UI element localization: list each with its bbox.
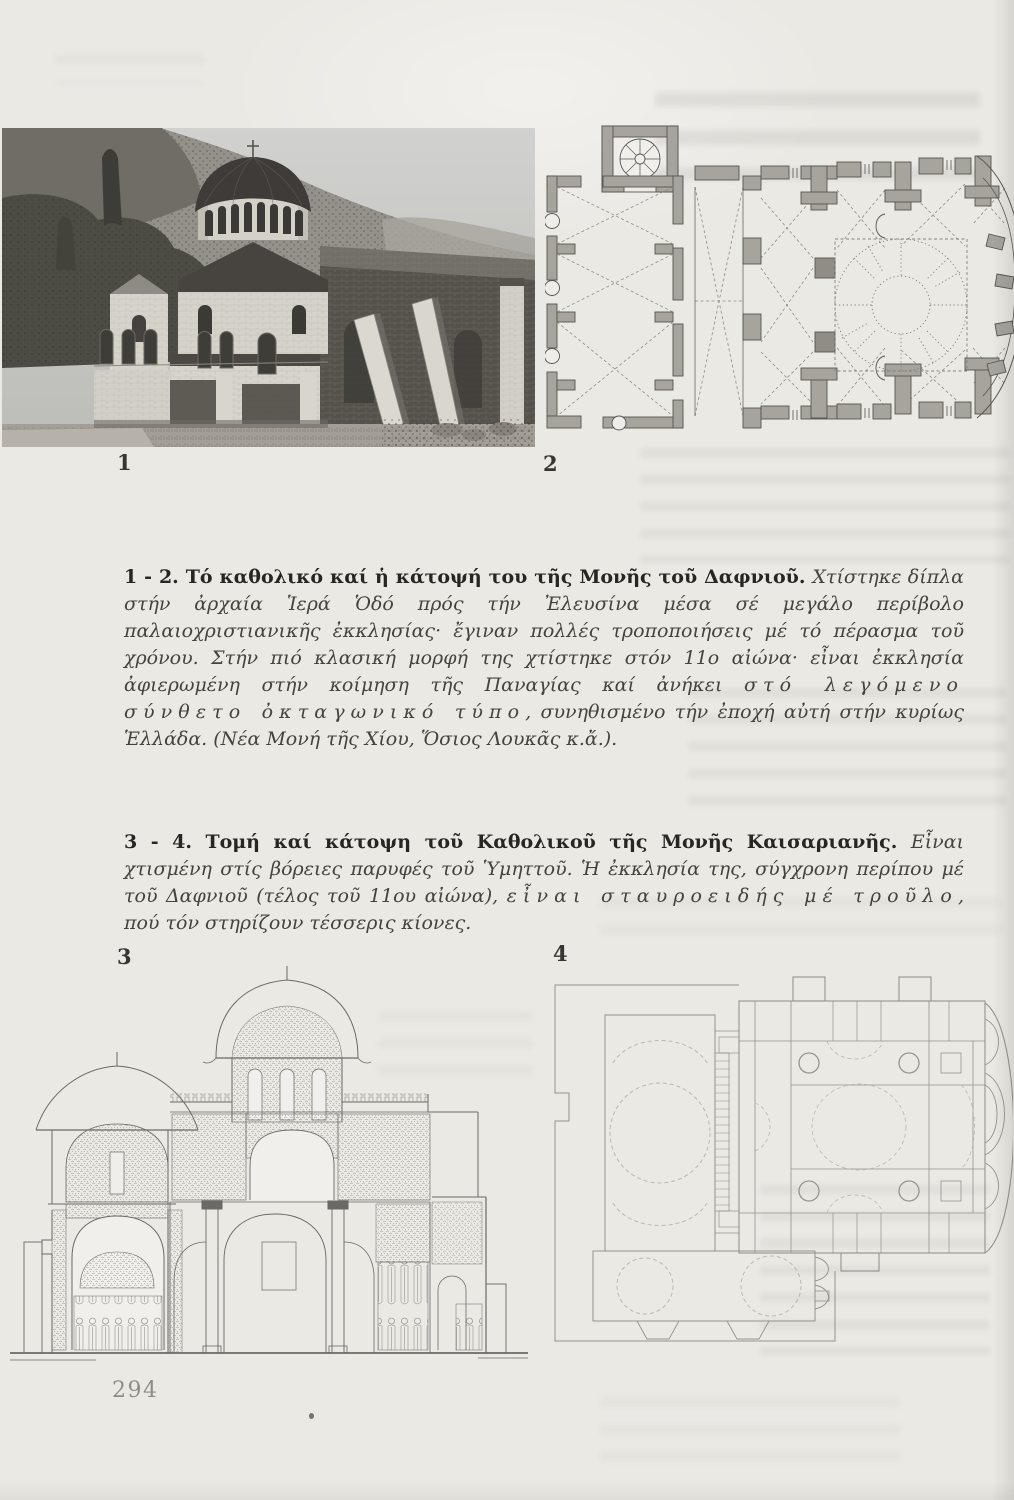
bleed-through-smudge	[640, 448, 1010, 563]
column-capital	[328, 1201, 348, 1209]
pier	[941, 1181, 961, 1201]
stair-passage	[715, 1031, 739, 1233]
figure-label-1: 1	[117, 450, 132, 475]
column-capital	[202, 1201, 222, 1209]
side-chapel-room	[593, 1251, 829, 1339]
dome-projections	[755, 1041, 975, 1213]
north-wall	[761, 156, 999, 210]
page-edge-shadow	[0, 1482, 1014, 1500]
naos-frieze	[170, 1112, 430, 1202]
pier	[941, 1053, 961, 1073]
esonarthex	[695, 166, 761, 428]
enclosure-wall	[555, 985, 835, 1341]
figure-photo-daphni	[2, 128, 535, 447]
page-number: 294	[112, 1378, 159, 1403]
vault-diagonals	[557, 184, 1005, 416]
naos-arcade	[170, 1201, 374, 1353]
figure-section-kaisariani	[8, 952, 535, 1382]
buttress-marks	[637, 1321, 769, 1339]
central-octagon	[835, 239, 967, 371]
caption-bold-lead: 3 - 4. Τομή καί κάτοψη τοῦ Καθολικοῦ τῆς…	[124, 831, 911, 853]
scan-speck	[309, 1413, 314, 1419]
column	[799, 1181, 819, 1201]
figure-plan-kaisariani	[543, 945, 1013, 1390]
bleed-through-smudge	[55, 55, 205, 85]
refectory-room	[605, 1015, 715, 1251]
exonarthex	[545, 176, 683, 430]
daphni-photo-illustration	[2, 128, 535, 447]
column	[899, 1181, 919, 1201]
bleed-through-smudge	[600, 1398, 900, 1468]
page-edge-shadow	[992, 0, 1014, 1500]
eave-band	[170, 354, 320, 368]
column	[799, 1053, 819, 1073]
caption-figures-3-4: 3 - 4. Τομή καί κάτοψη τοῦ Καθολικοῦ τῆς…	[124, 829, 964, 937]
caption-emphasized-term: εἶναι σταυροειδής μέ τροῦλο	[507, 885, 958, 907]
figure-label-2: 2	[543, 451, 558, 476]
church-outline	[739, 977, 1013, 1271]
church-interior	[739, 1001, 985, 1253]
caption-bold-lead: 1 - 2. Τό καθολικό καί ἡ κάτοψή του τῆς …	[124, 566, 812, 588]
kaisariani-section-drawing	[8, 952, 535, 1382]
caption-figures-1-2: 1 - 2. Τό καθολικό καί ἡ κάτοψή του τῆς …	[124, 564, 964, 753]
kaisariani-plan-drawing	[543, 945, 1013, 1390]
daphni-plan-drawing	[545, 118, 1014, 452]
figure-plan-daphni	[545, 118, 1014, 452]
column	[899, 1053, 919, 1073]
book-page: 1	[0, 0, 1014, 1500]
central-dome-bay	[170, 966, 428, 1122]
